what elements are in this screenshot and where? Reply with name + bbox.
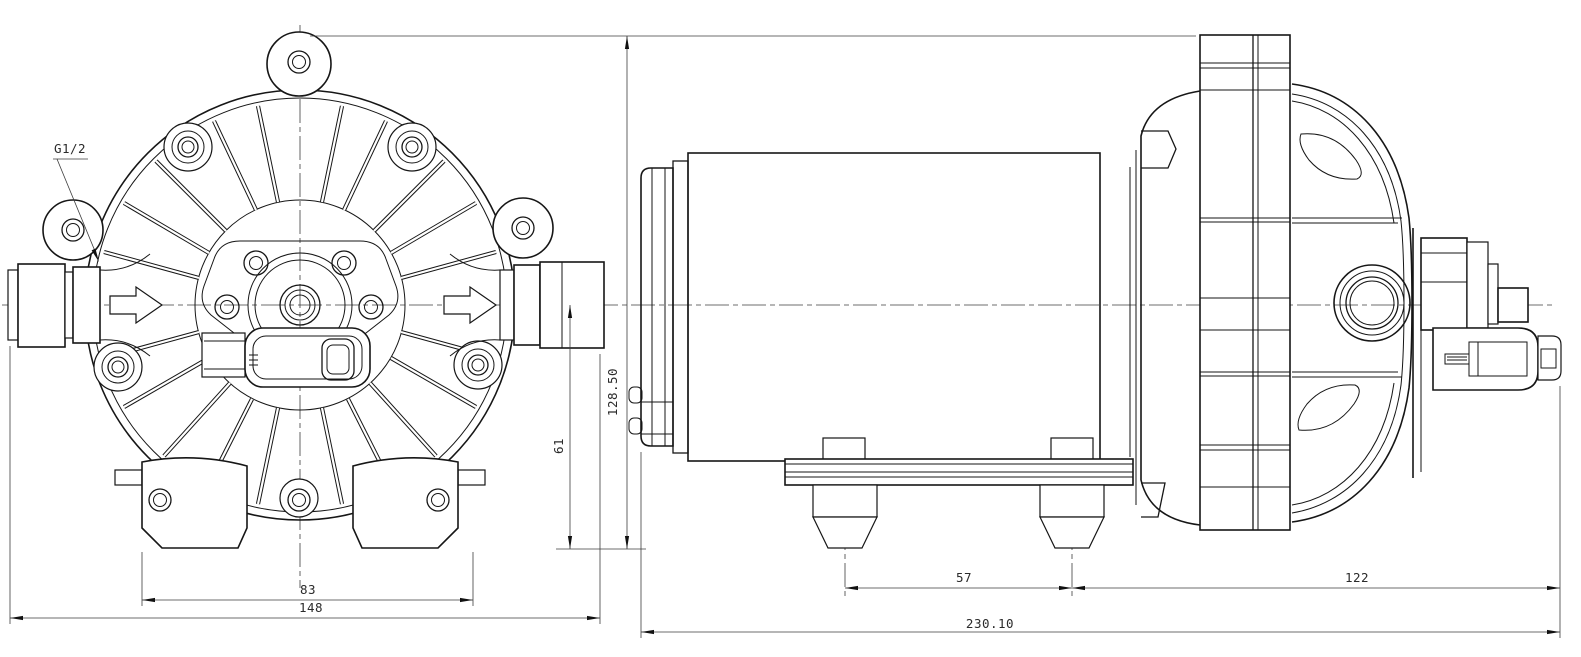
motor-barrel — [688, 153, 1100, 461]
dim-foot-spacing-label: 57 — [956, 570, 972, 585]
dimension-foot-to-front: 122 — [1072, 570, 1560, 590]
inlet-collar — [73, 267, 100, 343]
foot-flange-left — [115, 470, 142, 485]
mounting-bracket — [785, 438, 1133, 548]
dimension-foot-spacing: 57 — [845, 570, 1072, 590]
dim-foot-width-label: 83 — [300, 582, 316, 597]
handle-tab — [202, 333, 245, 377]
outlet-fitting-side — [1421, 238, 1528, 330]
pocket-upper-left — [164, 123, 212, 171]
mounting-ears — [43, 32, 553, 260]
dome-recess-lower — [1298, 385, 1359, 430]
motor-end-bell — [629, 168, 673, 446]
dim-overall-width-label: 148 — [299, 600, 323, 615]
flow-arrow-out-icon — [444, 287, 496, 323]
foot-left — [142, 458, 247, 548]
dim-overall-length-label: 230.10 — [966, 616, 1014, 631]
outlet-collar — [500, 270, 514, 340]
foot-flange-right — [458, 470, 485, 485]
bypass-handle — [202, 328, 370, 387]
foot-right — [353, 458, 458, 548]
dome-recess-upper — [1300, 134, 1361, 179]
outlet-mid — [514, 265, 540, 345]
dim-foot-to-front-label: 122 — [1345, 570, 1369, 585]
pocket-upper-right — [388, 123, 436, 171]
port-boss — [1334, 265, 1410, 341]
dim-port-thread-label: G1/2 — [54, 141, 86, 156]
inlet-hex-nut — [18, 264, 65, 347]
ear-top — [267, 32, 331, 96]
pressure-switch-connector — [1433, 328, 1561, 390]
dim-center-height-label: 61 — [551, 438, 566, 454]
dim-overall-height-label: 128.50 — [605, 368, 620, 416]
terminal-tab-1 — [629, 387, 642, 403]
dimension-foot-width: 83 — [142, 552, 473, 606]
side-view — [629, 35, 1561, 548]
flow-arrow-in-icon — [110, 287, 162, 323]
terminal-tab-2 — [629, 418, 642, 434]
drawing-canvas: G1/2 83 148 61 — [0, 0, 1581, 657]
bottom-tab — [280, 479, 318, 517]
head-dome — [1292, 84, 1421, 522]
head-adapter — [1130, 91, 1200, 525]
outlet-nipple — [1498, 288, 1528, 322]
inlet-end-cap — [8, 270, 18, 340]
clamp-ring — [1200, 35, 1290, 530]
outlet-hex-nut — [540, 262, 604, 348]
outlet-port — [444, 254, 604, 356]
pocket-lower-left — [94, 343, 142, 391]
leader-arrow — [92, 249, 99, 263]
pump-technical-drawing: G1/2 83 148 61 — [0, 0, 1581, 657]
front-view — [8, 32, 604, 548]
inlet-port — [8, 254, 162, 356]
rubber-foot-2 — [1040, 485, 1104, 548]
ear-right — [493, 198, 553, 258]
motor-end-ring — [673, 161, 688, 453]
rubber-foot-1 — [813, 485, 877, 548]
